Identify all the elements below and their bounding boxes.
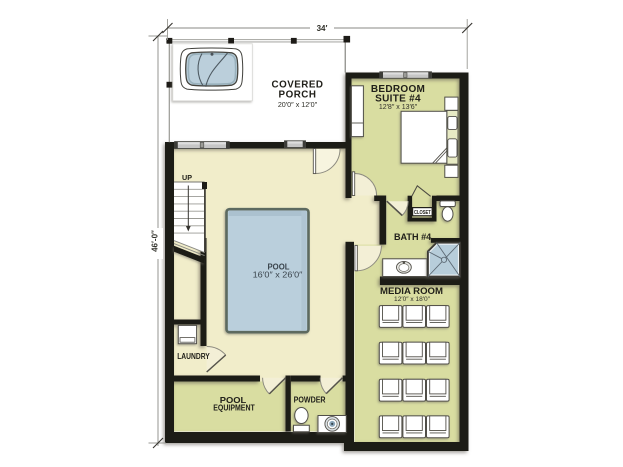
svg-text:SUITE #4: SUITE #4 xyxy=(375,94,421,105)
svg-text:BATH #4: BATH #4 xyxy=(394,231,432,242)
svg-text:46′-0″: 46′-0″ xyxy=(151,230,160,252)
svg-text:EQUIPMENT: EQUIPMENT xyxy=(213,403,255,413)
svg-text:CLOSET: CLOSET xyxy=(414,210,431,216)
svg-text:16′0″ x 26′0″: 16′0″ x 26′0″ xyxy=(253,270,303,279)
svg-text:LAUNDRY: LAUNDRY xyxy=(177,352,210,361)
svg-text:12′0″ x 18′0″: 12′0″ x 18′0″ xyxy=(394,296,430,303)
svg-text:20′0″ x 12′0″: 20′0″ x 12′0″ xyxy=(278,100,318,109)
svg-text:34′: 34′ xyxy=(317,24,328,33)
svg-text:12′8″ x 13′6″: 12′8″ x 13′6″ xyxy=(379,104,418,111)
svg-text:UP: UP xyxy=(182,173,192,182)
svg-text:POWDER: POWDER xyxy=(294,396,326,405)
